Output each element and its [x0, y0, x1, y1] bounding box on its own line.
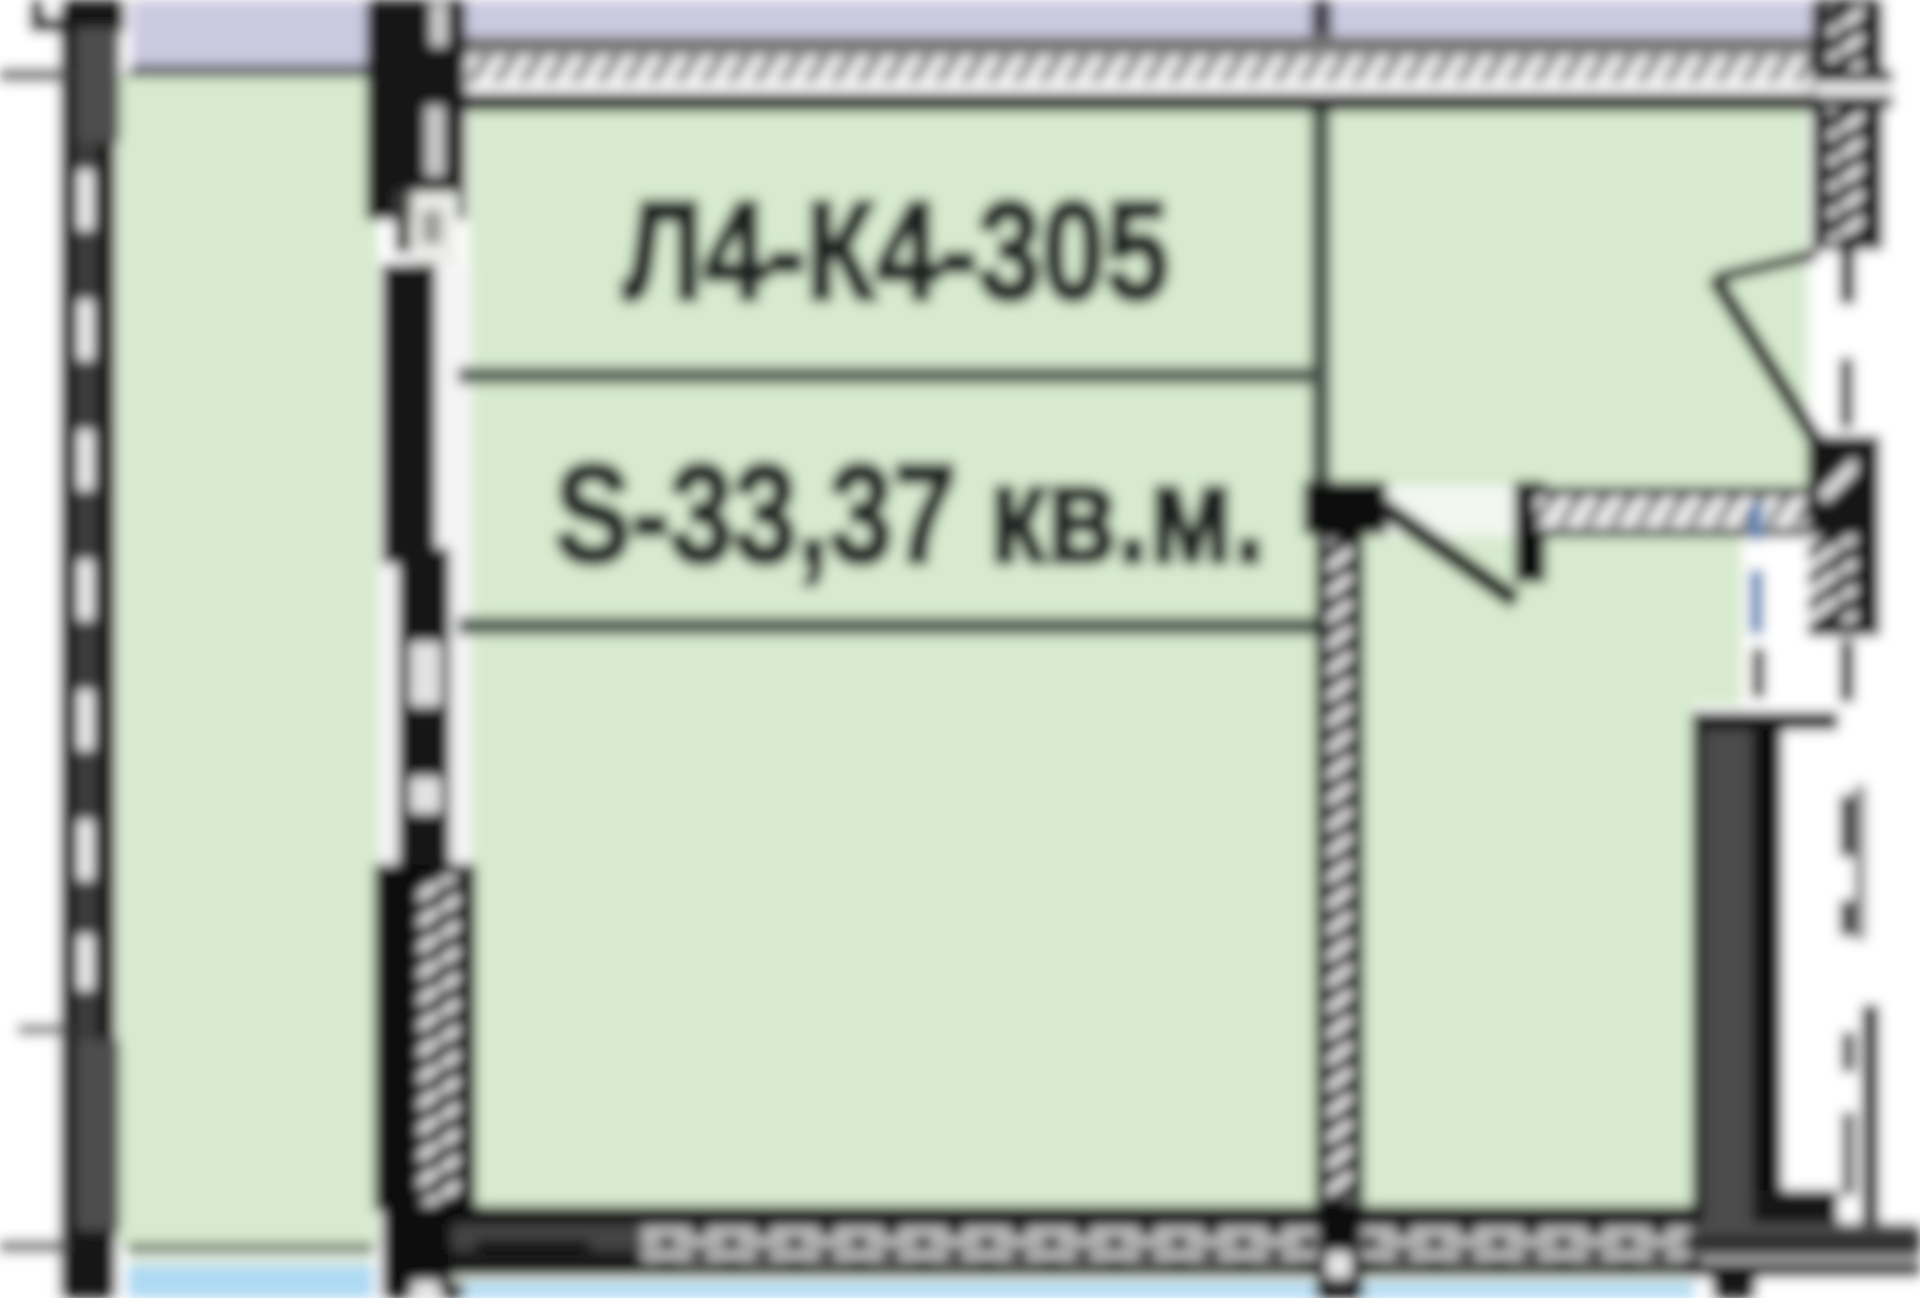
- svg-text:Л4-К4-305: Л4-К4-305: [623, 173, 1169, 329]
- svg-text:S-33,37 кв.м.: S-33,37 кв.м.: [555, 436, 1266, 592]
